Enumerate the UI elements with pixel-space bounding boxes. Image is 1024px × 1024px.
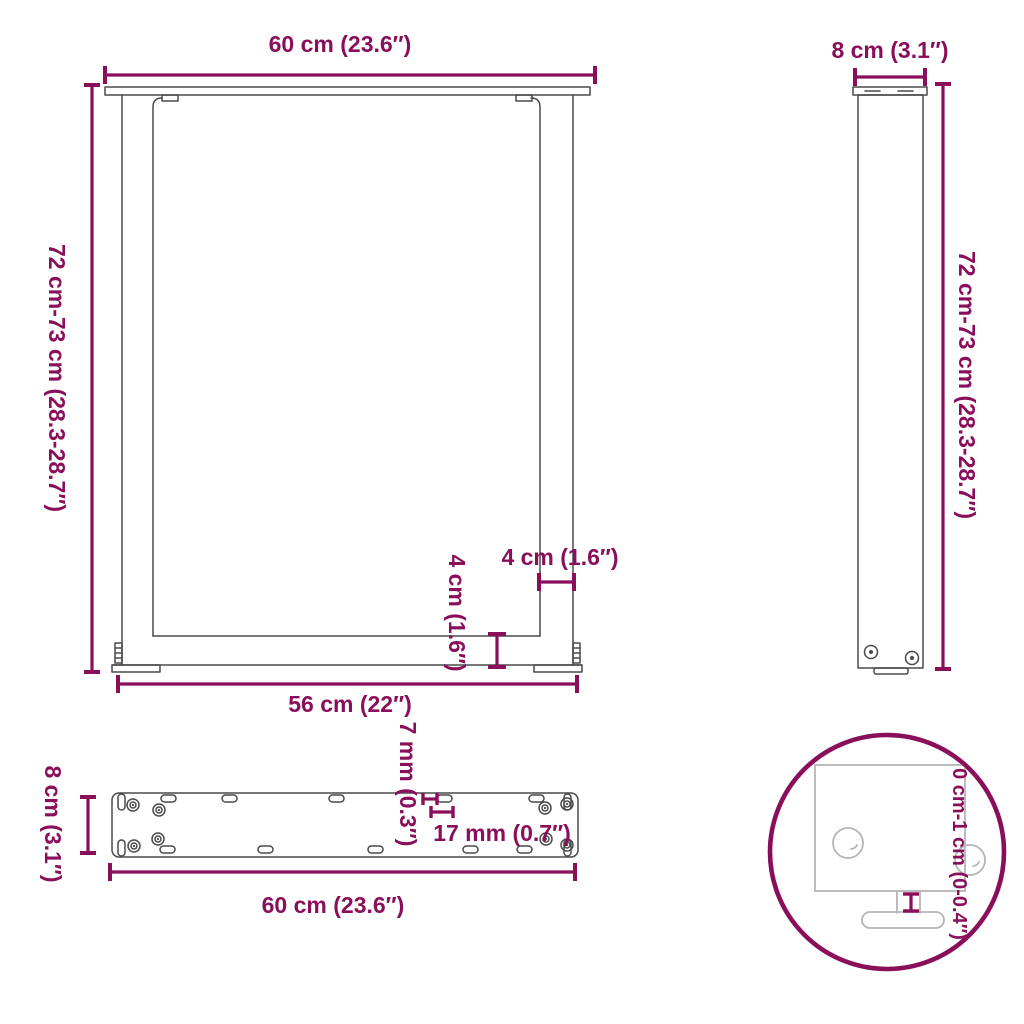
adjustment-dimension: 0 cm-1 cm (0-0.4″) [903,768,970,940]
side-foot-tab [874,668,908,674]
left-adjuster-knob [115,643,122,663]
side-view: 8 cm (3.1″) 72 cm-73 cm (28.3-28.7″) [831,37,980,674]
side-height-label: 72 cm-73 cm (28.3-28.7″) [954,251,980,519]
plate-width-dimension: 8 cm (3.1″) [40,765,96,882]
side-foot-screw-right [906,652,919,665]
side-depth-dimension: 8 cm (3.1″) [831,37,948,86]
crossbar-thickness-dimension: 4 cm (1.6″) [444,554,506,671]
side-depth-label: 8 cm (3.1″) [831,37,948,63]
left-leg-inner-edge [153,98,162,636]
crossbar-thickness-label: 4 cm (1.6″) [444,554,470,671]
right-weld-tab [516,95,532,101]
plate-top-view: 7 mm (0.3″) 17 mm (0.7″) 8 cm (3.1″) 60 … [40,722,578,918]
side-leg-body [858,95,923,668]
plate-length-dimension: 60 cm (23.6″) [110,863,575,918]
front-width-dimension: 60 cm (23.6″) [105,31,595,84]
front-height-label: 72 cm-73 cm (28.3-28.7″) [44,244,70,512]
detail-circle-view: 0 cm-1 cm (0-0.4″) [770,735,1004,969]
front-view: 60 cm (23.6″) 72 cm-73 cm (28.3-28.7″) 4… [44,31,619,717]
plate-slots-top-row [161,795,544,802]
side-height-dimension: 72 cm-73 cm (28.3-28.7″) [935,84,980,669]
front-width-label: 60 cm (23.6″) [269,31,412,57]
plate-width-label: 8 cm (3.1″) [40,765,66,882]
dimension-diagram-page: 60 cm (23.6″) 72 cm-73 cm (28.3-28.7″) 4… [0,0,1024,1024]
front-inner-width-label: 56 cm (22″) [288,691,412,717]
table-leg-dimension-drawing: 60 cm (23.6″) 72 cm-73 cm (28.3-28.7″) 4… [0,0,1024,1024]
adjustment-label: 0 cm-1 cm (0-0.4″) [948,768,970,940]
right-adjuster-knob [573,643,580,663]
front-view-frame [105,87,590,672]
leg-thickness-label: 4 cm (1.6″) [501,544,618,570]
slot-length-label: 17 mm (0.7″) [433,820,571,846]
front-height-dimension: 72 cm-73 cm (28.3-28.7″) [44,85,100,672]
front-inner-width-dimension: 56 cm (22″) [118,675,577,717]
detail-leg-bottom [815,765,965,891]
side-view-column [853,87,927,674]
detail-foot-pad [862,912,944,928]
slot-width-dimension: 7 mm (0.3″) [395,722,437,847]
side-top-plate [853,87,927,95]
slot-width-label: 7 mm (0.3″) [395,722,421,847]
left-weld-tab [162,95,178,101]
plate-length-label: 60 cm (23.6″) [262,892,405,918]
plate-slots-bottom-row [160,846,532,853]
leg-thickness-dimension: 4 cm (1.6″) [501,544,618,591]
side-foot-screw-left [865,646,878,659]
top-mounting-plate [105,87,590,95]
left-foot-plate [112,665,160,672]
detail-screw-hole-left [833,828,863,858]
right-foot-plate [534,665,582,672]
